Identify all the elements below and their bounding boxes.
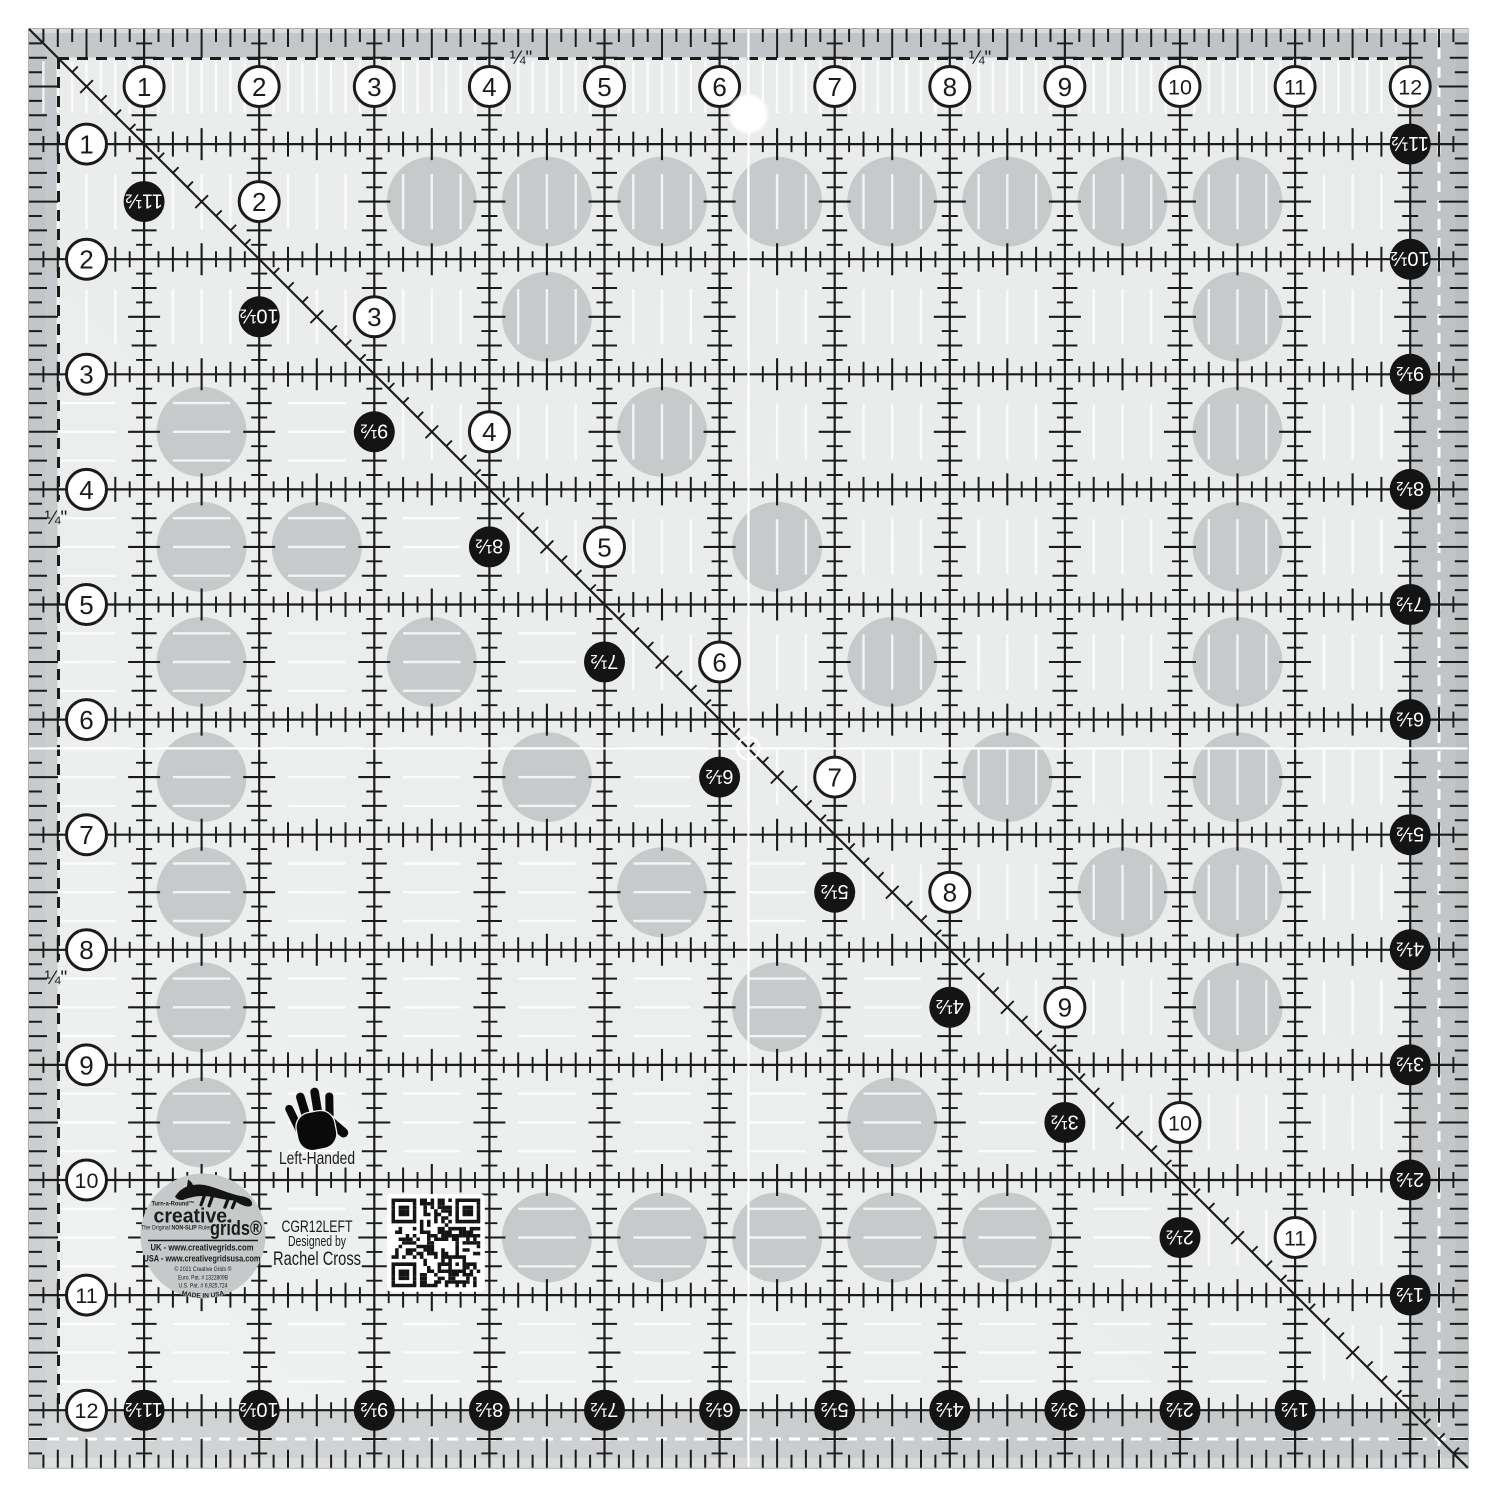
- svg-text:U.S. Pat. # 6,925,724: U.S. Pat. # 6,925,724: [179, 1283, 228, 1290]
- svg-text:4½: 4½: [936, 1398, 964, 1420]
- svg-text:2: 2: [252, 72, 266, 102]
- svg-text:6½: 6½: [705, 1398, 733, 1420]
- svg-text:11: 11: [75, 1284, 97, 1308]
- svg-text:1: 1: [79, 130, 93, 160]
- svg-text:4½: 4½: [936, 995, 964, 1017]
- svg-text:9½: 9½: [1396, 362, 1424, 384]
- svg-text:11: 11: [1284, 75, 1306, 99]
- svg-text:USA - www.creativegridsusa.com: USA - www.creativegridsusa.com: [144, 1254, 261, 1264]
- svg-text:© 2021 Creative Grids ®: © 2021 Creative Grids ®: [175, 1265, 232, 1273]
- svg-text:11½: 11½: [125, 189, 163, 211]
- svg-text:3: 3: [367, 72, 381, 102]
- svg-text:2½: 2½: [1166, 1225, 1194, 1247]
- svg-text:9: 9: [1058, 72, 1072, 102]
- svg-text:1: 1: [137, 72, 151, 102]
- svg-text:9: 9: [79, 1050, 93, 1080]
- svg-text:¼": ¼": [969, 48, 992, 69]
- svg-text:9½: 9½: [360, 1398, 388, 1420]
- svg-text:6½: 6½: [705, 765, 733, 787]
- svg-text:8: 8: [943, 878, 957, 908]
- svg-text:5: 5: [79, 590, 93, 620]
- svg-text:1½: 1½: [1396, 1283, 1424, 1305]
- svg-text:10½: 10½: [239, 305, 278, 327]
- svg-text:8½: 8½: [1396, 477, 1424, 499]
- svg-text:3½: 3½: [1396, 1053, 1424, 1075]
- svg-text:6: 6: [712, 647, 726, 677]
- svg-text:11: 11: [1284, 1226, 1306, 1250]
- svg-text:7: 7: [79, 820, 93, 850]
- svg-text:10: 10: [75, 1169, 99, 1193]
- svg-text:11½: 11½: [1391, 132, 1429, 154]
- svg-text:5: 5: [597, 72, 611, 102]
- svg-text:2: 2: [79, 245, 93, 275]
- svg-text:7: 7: [827, 763, 841, 793]
- svg-text:2½: 2½: [1166, 1398, 1194, 1420]
- svg-text:Euro. Pat. # 1322809B: Euro. Pat. # 1322809B: [178, 1275, 228, 1282]
- svg-text:7½: 7½: [1396, 592, 1424, 614]
- svg-text:5½: 5½: [1396, 823, 1424, 845]
- svg-text:¼": ¼": [45, 508, 68, 529]
- svg-text:8½: 8½: [475, 1398, 503, 1420]
- svg-text:4½: 4½: [1396, 938, 1424, 960]
- svg-text:4: 4: [482, 417, 496, 447]
- svg-text:Rachel Cross: Rachel Cross: [273, 1248, 361, 1270]
- svg-text:Left-Handed: Left-Handed: [279, 1148, 355, 1168]
- svg-text:11½: 11½: [125, 1398, 163, 1420]
- svg-text:7½: 7½: [590, 650, 618, 672]
- svg-text:6½: 6½: [1396, 707, 1424, 729]
- svg-text:3: 3: [367, 302, 381, 332]
- svg-text:5½: 5½: [820, 1398, 848, 1420]
- svg-text:3½: 3½: [1051, 1398, 1079, 1420]
- svg-text:10: 10: [1168, 75, 1192, 99]
- svg-text:5½: 5½: [820, 880, 848, 902]
- svg-text:10½: 10½: [239, 1398, 278, 1420]
- svg-text:12: 12: [75, 1399, 99, 1423]
- svg-text:8½: 8½: [475, 535, 503, 557]
- svg-text:¼": ¼": [510, 48, 533, 69]
- svg-text:9½: 9½: [360, 420, 388, 442]
- svg-text:UK - www.creativegrids.com: UK - www.creativegrids.com: [151, 1243, 254, 1253]
- svg-text:8: 8: [943, 72, 957, 102]
- svg-text:5: 5: [597, 532, 611, 562]
- svg-text:3½: 3½: [1051, 1110, 1079, 1132]
- svg-text:4: 4: [482, 72, 496, 102]
- svg-text:7: 7: [827, 72, 841, 102]
- svg-text:3: 3: [79, 360, 93, 390]
- svg-text:The Original NON-SLIP Ruler: The Original NON-SLIP Ruler: [141, 1225, 212, 1232]
- svg-text:7½: 7½: [590, 1398, 618, 1420]
- svg-text:6: 6: [79, 705, 93, 735]
- svg-text:4: 4: [79, 475, 93, 505]
- svg-text:12: 12: [1398, 75, 1422, 99]
- svg-text:9: 9: [1058, 993, 1072, 1023]
- svg-text:10: 10: [1168, 1111, 1192, 1135]
- svg-text:6: 6: [712, 72, 726, 102]
- svg-text:¼": ¼": [45, 968, 68, 989]
- svg-text:1½: 1½: [1281, 1398, 1309, 1420]
- svg-text:8: 8: [79, 935, 93, 965]
- svg-text:2½: 2½: [1396, 1168, 1424, 1190]
- svg-text:10½: 10½: [1390, 247, 1429, 269]
- svg-text:grids®: grids®: [210, 1217, 262, 1240]
- svg-text:2: 2: [252, 187, 266, 217]
